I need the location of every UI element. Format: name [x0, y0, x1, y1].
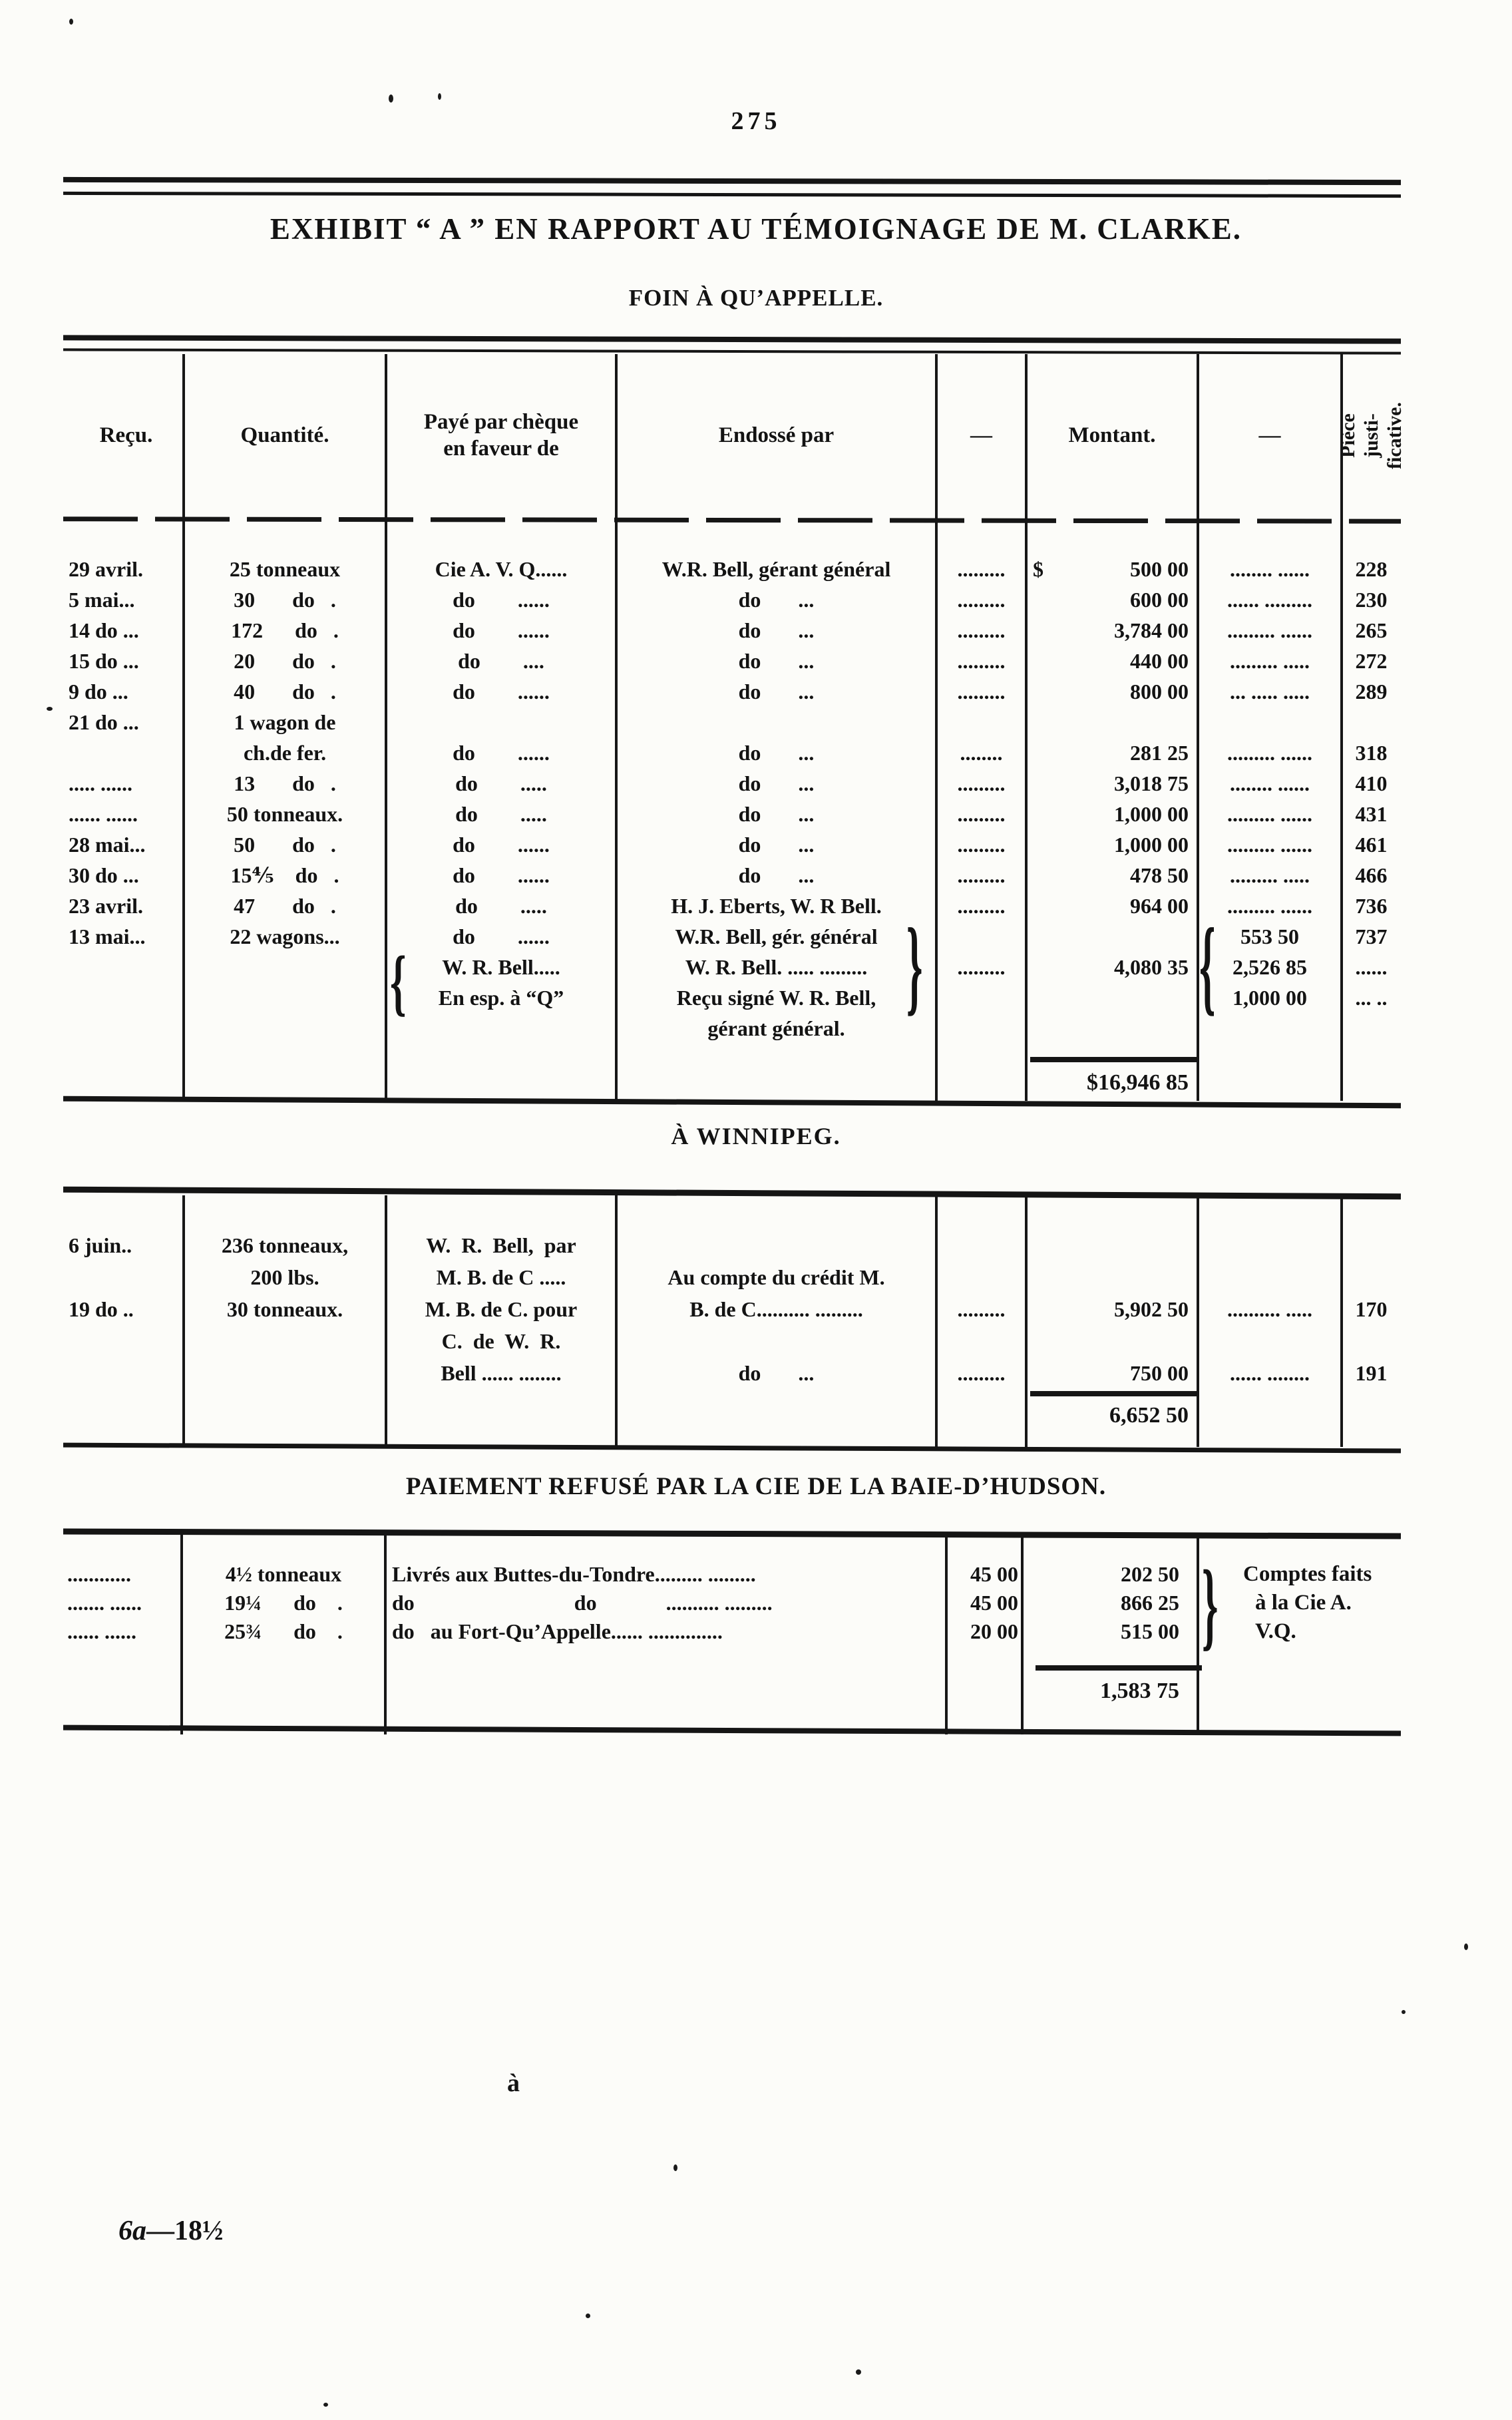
cell-endosse: do ... [616, 676, 936, 707]
cell-dash2 [1198, 1262, 1342, 1293]
cell-dash2: ......... ...... [1198, 615, 1342, 646]
cell-montant: 440 00 [1026, 646, 1198, 676]
cell-recu: ...... ...... [63, 799, 184, 829]
cell-description: do do .......... ......... [385, 1589, 946, 1617]
table-row: 15 do ...20 do .do ....do ............44… [63, 646, 1401, 676]
cell-endosse [616, 1230, 936, 1261]
cell-piece: 410 [1342, 768, 1401, 799]
cell-quantite: 15⅘ do . [184, 860, 386, 891]
cell-endosse [616, 707, 936, 737]
cell-paye: W. R. Bell..... [386, 952, 616, 982]
cell-dash: ......... [936, 1358, 1026, 1388]
cell-recu [63, 982, 184, 1013]
cell-montant: 478 50 [1026, 860, 1198, 891]
cell-dash2: ......... ...... [1198, 891, 1342, 921]
table-row: ch.de fer.do ......do ...........281 25.… [63, 737, 1401, 768]
cell-dash: ......... [936, 676, 1026, 707]
cell-piece: 461 [1342, 829, 1401, 860]
cell-paye: do ..... [386, 891, 616, 921]
cell-endosse [616, 1326, 936, 1356]
table-row: 5 mai...30 do .do ......do ............6… [63, 584, 1401, 615]
cell-piece: 272 [1342, 646, 1401, 676]
col-header-piece-wrap: Pièce justi- ficative. [1342, 354, 1401, 516]
table-row: 6 juin..236 tonneaux,W. R. Bell, par [63, 1230, 1401, 1261]
scanned-document-page: 275 EXHIBIT “ A ” EN RAPPORT AU TÉMOIGNA… [0, 0, 1512, 2420]
cell-paye: Cie A. V. Q...... [386, 554, 616, 584]
cell-dash2: ........ ...... [1198, 554, 1342, 584]
table-row: ...... ......50 tonneaux.do .....do ....… [63, 799, 1401, 829]
cell-piece [1342, 1262, 1401, 1293]
ink-speck [1464, 1943, 1468, 1950]
cell-montant: 281 25 [1026, 737, 1198, 768]
cell-piece [1342, 1326, 1401, 1356]
table3-bottom-rule [63, 1725, 1401, 1736]
divider [63, 192, 1401, 198]
table-row: 200 lbs.M. B. de C .....Au compte du cré… [63, 1262, 1401, 1293]
table3-total-rule [1036, 1665, 1202, 1671]
cell-montant: 3,018 75 [1026, 768, 1198, 799]
cell-piece: 736 [1342, 891, 1401, 921]
cell-paye: W. R. Bell, par [386, 1230, 616, 1261]
cell-dash [936, 982, 1026, 1013]
cell-quantite: 50 do . [184, 829, 386, 860]
col-header-dash1: — [936, 354, 1026, 516]
table-row: ............4½ tonneauxLivrés aux Buttes… [63, 1560, 1198, 1589]
cell-montant: 202 50 [1022, 1560, 1198, 1589]
cell-piece: ...... [1342, 952, 1401, 982]
cell-paye: do ...... [386, 737, 616, 768]
divider [63, 177, 1401, 185]
cell-dash2: ...... ......... [1198, 584, 1342, 615]
cell-quantite [184, 1013, 386, 1044]
cell-paye: M. B. de C ..... [386, 1262, 616, 1293]
hudson-heading: PAIEMENT REFUSÉ PAR LA CIE DE LA BAIE-D’… [0, 1472, 1512, 1501]
cell-dash2: ......... ..... [1198, 860, 1342, 891]
table-row: 9 do ...40 do .do ......do ............8… [63, 676, 1401, 707]
table1-total: $16,946 85 [1026, 1070, 1189, 1096]
cell-dash [936, 1230, 1026, 1261]
cell-dash: ......... [936, 799, 1026, 829]
cell-quantite: 236 tonneaux, [184, 1230, 386, 1261]
cell-dash2: ........ ...... [1198, 768, 1342, 799]
cell-paye [386, 1013, 616, 1044]
cell-paye: do ...... [386, 615, 616, 646]
cell-montant: 515 00 [1022, 1617, 1198, 1646]
dollar-sign: $ [1033, 554, 1043, 584]
cell-endosse: do ... [616, 768, 936, 799]
cell-montant [1026, 1262, 1198, 1293]
cell-endosse: do ... [616, 615, 936, 646]
cell-dash: ......... [936, 829, 1026, 860]
cell-endosse: W.R. Bell, gérant général [616, 554, 936, 584]
col-header-montant: Montant. [1026, 354, 1198, 516]
cell-recu: 6 juin.. [63, 1230, 184, 1261]
cell-endosse: B. de C.......... ......... [616, 1294, 936, 1324]
page-number: 275 [0, 106, 1512, 136]
cell-endosse: Reçu signé W. R. Bell, [616, 982, 936, 1013]
cell-paye: En esp. à “Q” [386, 982, 616, 1013]
page-footer-mark: 6a—18½ [118, 2215, 224, 2247]
cell-quantite: 1 wagon de [184, 707, 386, 737]
cell-paye: do ...... [386, 584, 616, 615]
cell-dash2: ......... ..... [1198, 646, 1342, 676]
cell-dash2: ... ..... ..... [1198, 676, 1342, 707]
cell-quantite: 4½ tonneaux [182, 1560, 385, 1589]
table-row: C. de W. R. [63, 1326, 1401, 1356]
cell-prix: 45 00 [946, 1589, 1022, 1617]
cell-quantite: 13 do . [184, 768, 386, 799]
brace-endorse: } [906, 913, 922, 1020]
cell-quantite: 30 tonneaux. [184, 1294, 386, 1324]
cell-quantite: 30 do . [184, 584, 386, 615]
table2-top-rule [63, 1187, 1401, 1200]
stray-ink-mark: à [507, 2069, 520, 2098]
cell-piece [1342, 1013, 1401, 1044]
cell-montant: 800 00 [1026, 676, 1198, 707]
cell-dash [936, 1013, 1026, 1044]
brace-amounts: { [1199, 913, 1215, 1020]
cell-dash: ......... [936, 768, 1026, 799]
cell-recu: 30 do ... [63, 860, 184, 891]
cell-dash [936, 1326, 1026, 1356]
cell-dash: ........ [936, 737, 1026, 768]
table2-total: 6,652 50 [1026, 1403, 1189, 1428]
cell-dash2: ......... ...... [1198, 737, 1342, 768]
cell-montant: 600 00 [1026, 584, 1198, 615]
cell-quantite: ch.de fer. [184, 737, 386, 768]
cell-dash: ......... [936, 646, 1026, 676]
cell-paye: C. de W. R. [386, 1326, 616, 1356]
cell-prix: 45 00 [946, 1560, 1022, 1589]
cell-quantite: 25 tonneaux [184, 554, 386, 584]
footer-italic-part: 6a [118, 2216, 146, 2246]
cell-montant [1026, 982, 1198, 1013]
col-header-piece-rotated: Pièce justi- ficative. [1336, 402, 1406, 469]
cell-recu: 23 avril. [63, 891, 184, 921]
cell-montant: 1,000 00 [1026, 799, 1198, 829]
ink-speck [389, 95, 393, 102]
table1-top-rule [63, 335, 1401, 343]
cell-piece: 228 [1342, 554, 1401, 584]
cell-montant: 1,000 00 [1026, 829, 1198, 860]
cell-recu [63, 1262, 184, 1293]
cell-dash: ......... [936, 891, 1026, 921]
ink-speck [673, 2164, 677, 2171]
cell-montant: 964 00 [1026, 891, 1198, 921]
cell-recu: 19 do .. [63, 1294, 184, 1324]
cell-endosse: do ... [616, 737, 936, 768]
cell-montant [1026, 921, 1198, 952]
cell-dash2: ......... ...... [1198, 829, 1342, 860]
cell-paye: do ..... [386, 799, 616, 829]
cell-quantite [184, 952, 386, 982]
table2-bottom-rule [63, 1443, 1401, 1454]
cell-paye: M. B. de C. pour [386, 1294, 616, 1324]
page-subtitle: FOIN À QU’APPELLE. [0, 285, 1512, 311]
cell-paye: Bell ...... ........ [386, 1358, 616, 1388]
cell-dash2 [1198, 1230, 1342, 1261]
cell-paye: do ...... [386, 860, 616, 891]
winnipeg-heading: À WINNIPEG. [0, 1122, 1512, 1150]
table1-header-rule [63, 516, 1401, 524]
cell-montant [1026, 1326, 1198, 1356]
cell-paye: do ..... [386, 768, 616, 799]
table1-header-row: Reçu. Quantité. Payé par chèque en faveu… [63, 354, 1401, 516]
cell-recu: ..... ...... [63, 768, 184, 799]
page-title: EXHIBIT “ A ” EN RAPPORT AU TÉMOIGNAGE D… [0, 212, 1512, 246]
table-row: Bell ...... ........do ............750 0… [63, 1358, 1401, 1388]
cell-piece [1342, 707, 1401, 737]
cell-endosse: do ... [616, 829, 936, 860]
cell-quantite: 19¼ do . [182, 1589, 385, 1617]
cell-description: do au Fort-Qu’Appelle...... ............… [385, 1617, 946, 1646]
cell-endosse: do ... [616, 646, 936, 676]
brace-payee: { [390, 946, 406, 1020]
table-row: ....... ......19¼ do .do do .......... .… [63, 1589, 1198, 1617]
cell-dash2: 2,526 85 [1198, 952, 1342, 982]
cell-dash2: ......... ...... [1198, 799, 1342, 829]
cell-montant [1026, 1013, 1198, 1044]
cell-montant: 4,080 35 [1026, 952, 1198, 982]
cell-montant: 5,902 50 [1026, 1294, 1198, 1324]
cell-paye: do ...... [386, 676, 616, 707]
cell-piece: 431 [1342, 799, 1401, 829]
cell-dash2: ...... ........ [1198, 1358, 1342, 1388]
cell-dash2: .......... ..... [1198, 1294, 1342, 1324]
cell-recu [63, 952, 184, 982]
cell-piece: 289 [1342, 676, 1401, 707]
table1-bottom-rule [63, 1096, 1401, 1109]
cell-endosse: W.R. Bell, gér. général [616, 921, 936, 952]
cell-quantite: 40 do . [184, 676, 386, 707]
cell-recu: 28 mai... [63, 829, 184, 860]
cell-dash [936, 707, 1026, 737]
cell-montant [1026, 707, 1198, 737]
cell-quantite [184, 982, 386, 1013]
cell-paye: do ...... [386, 829, 616, 860]
cell-piece: 737 [1342, 921, 1401, 952]
cell-paye: do ...... [386, 921, 616, 952]
cell-piece: 318 [1342, 737, 1401, 768]
cell-dash2 [1198, 707, 1342, 737]
cell-endosse: gérant général. [616, 1013, 936, 1044]
col-header-dash2: — [1198, 354, 1342, 516]
cell-quantite [184, 1358, 386, 1388]
cell-recu: 15 do ... [63, 646, 184, 676]
ink-speck [856, 2369, 861, 2375]
cell-piece: 265 [1342, 615, 1401, 646]
cell-montant [1026, 1230, 1198, 1261]
table-row: ..... ......13 do .do .....do ..........… [63, 768, 1401, 799]
cell-dash: ......... [936, 584, 1026, 615]
cell-prix: 20 00 [946, 1617, 1022, 1646]
cell-quantite: 22 wagons... [184, 921, 386, 952]
cell-recu: 5 mai... [63, 584, 184, 615]
hudson-note-line: V.Q. [1255, 1617, 1296, 1646]
brace-comptes: } [1202, 1557, 1218, 1656]
table3-top-rule [63, 1528, 1401, 1539]
table-row: 29 avril.25 tonneauxCie A. V. Q......W.R… [63, 554, 1401, 584]
table-row: 28 mai...50 do .do ......do ............… [63, 829, 1401, 860]
cell-quantite: 200 lbs. [184, 1262, 386, 1293]
cell-piece: 191 [1342, 1358, 1401, 1388]
cell-endosse: do ... [616, 1358, 936, 1388]
table1-total-rule [1030, 1057, 1198, 1062]
cell-quantite: 172 do . [184, 615, 386, 646]
cell-paye [386, 707, 616, 737]
cell-recu [63, 737, 184, 768]
cell-recu: ....... ...... [63, 1589, 182, 1617]
table-row: 30 do ...15⅘ do .do ......do ...........… [63, 860, 1401, 891]
cell-piece [1342, 1230, 1401, 1261]
cell-recu [63, 1326, 184, 1356]
col-header-quantite: Quantité. [184, 354, 386, 516]
cell-quantite [184, 1326, 386, 1356]
cell-dash: ......... [936, 1294, 1026, 1324]
cell-dash2 [1198, 1013, 1342, 1044]
cell-dash [936, 921, 1026, 952]
table-row: 19 do ..30 tonneaux.M. B. de C. pourB. d… [63, 1294, 1401, 1324]
cell-piece: 230 [1342, 584, 1401, 615]
hudson-note-line: à la Cie A. [1255, 1589, 1352, 1617]
cell-description: Livrés aux Buttes-du-Tondre......... ...… [385, 1560, 946, 1589]
cell-quantite: 47 do . [184, 891, 386, 921]
table3-total: 1,583 75 [1022, 1679, 1179, 1704]
cell-recu [63, 1358, 184, 1388]
table-row: 21 do ...1 wagon de [63, 707, 1401, 737]
cell-dash2: 1,000 00 [1198, 982, 1342, 1013]
col-header-endosse: Endossé par [616, 354, 936, 516]
cell-dash: ......... [936, 860, 1026, 891]
ink-speck [438, 93, 441, 100]
hudson-note-line: Comptes faits [1243, 1560, 1372, 1589]
cell-endosse: do ... [616, 584, 936, 615]
cell-quantite: 20 do . [184, 646, 386, 676]
cell-endosse: Au compte du crédit M. [616, 1262, 936, 1293]
cell-montant: 750 00 [1026, 1358, 1198, 1388]
cell-recu: 29 avril. [63, 554, 184, 584]
ink-speck [47, 707, 53, 711]
cell-dash2 [1198, 1326, 1342, 1356]
ink-speck [69, 19, 73, 25]
cell-dash: ......... [936, 952, 1026, 982]
cell-endosse: do ... [616, 799, 936, 829]
cell-recu: 14 do ... [63, 615, 184, 646]
cell-quantite: 25¾ do . [182, 1617, 385, 1646]
col-header-recu: Reçu. [63, 354, 184, 516]
footer-rest-part: —18½ [146, 2216, 224, 2246]
col-header-paye: Payé par chèque en faveur de [386, 354, 616, 516]
cell-quantite: 50 tonneaux. [184, 799, 386, 829]
cell-recu: ............ [63, 1560, 182, 1589]
cell-paye: do .... [386, 646, 616, 676]
ink-speck [323, 2403, 328, 2407]
ink-speck [1402, 2010, 1406, 2014]
cell-recu: 13 mai... [63, 921, 184, 952]
cell-montant: 3,784 00 [1026, 615, 1198, 646]
table-row: 14 do ...172 do .do ......do ...........… [63, 615, 1401, 646]
table-row: ...... ......25¾ do .do au Fort-Qu’Appel… [63, 1617, 1198, 1646]
cell-montant: 500 00 [1026, 554, 1198, 584]
ink-speck [586, 2314, 590, 2318]
cell-endosse: W. R. Bell. ..... ......... [616, 952, 936, 982]
table2-total-rule [1030, 1391, 1198, 1396]
cell-recu [63, 1013, 184, 1044]
cell-piece: ... .. [1342, 982, 1401, 1013]
cell-piece: 466 [1342, 860, 1401, 891]
cell-recu: ...... ...... [63, 1617, 182, 1646]
cell-endosse: H. J. Eberts, W. R Bell. [616, 891, 936, 921]
cell-montant: 866 25 [1022, 1589, 1198, 1617]
cell-dash: ......... [936, 554, 1026, 584]
cell-dash2: 553 50 [1198, 921, 1342, 952]
cell-dash: ......... [936, 615, 1026, 646]
cell-dash [936, 1262, 1026, 1293]
cell-recu: 21 do ... [63, 707, 184, 737]
cell-endosse: do ... [616, 860, 936, 891]
cell-piece: 170 [1342, 1294, 1401, 1324]
cell-recu: 9 do ... [63, 676, 184, 707]
